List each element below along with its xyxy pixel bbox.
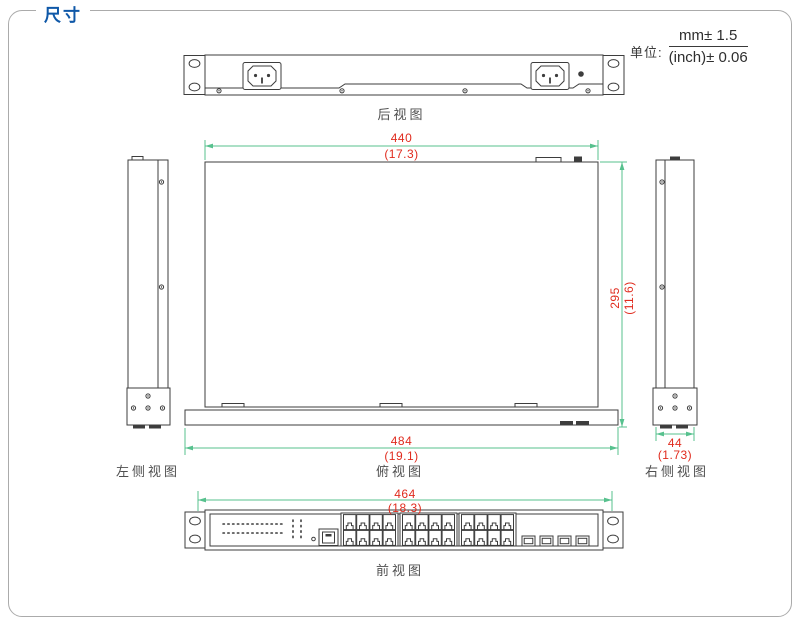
console-port bbox=[319, 529, 338, 546]
reset-button bbox=[312, 537, 316, 541]
top-chassis bbox=[205, 162, 598, 407]
front-flange bbox=[185, 410, 618, 425]
dim-mount-mm: 464 bbox=[198, 487, 612, 501]
right-side-view-drawing bbox=[653, 157, 697, 429]
dim-depth-inch: (11.6) bbox=[622, 281, 636, 314]
front-view-label: 前视图 bbox=[205, 560, 595, 579]
dim-overall-mm: 484 bbox=[185, 434, 618, 448]
left-side-chassis bbox=[128, 160, 168, 388]
rj45-port-block-2 bbox=[400, 513, 457, 546]
left-side-view-drawing bbox=[127, 157, 170, 429]
right-side-chassis bbox=[656, 160, 694, 388]
dim-side-inch: (1.73) bbox=[646, 448, 704, 462]
dim-width-inch: (17.3) bbox=[205, 147, 598, 161]
top-view-drawing bbox=[185, 157, 618, 426]
power-inlet-1 bbox=[243, 63, 281, 90]
rear-view-drawing bbox=[184, 55, 624, 95]
rj45-port-block-1 bbox=[341, 513, 398, 546]
dim-depth: 295 (11.6) bbox=[608, 268, 636, 328]
top-view-label: 俯视图 bbox=[205, 461, 595, 480]
dimension-diagram-page: 尺寸 单位: mm± 1.5 (inch)± 0.06 bbox=[0, 0, 800, 622]
left-view-label: 左侧视图 bbox=[98, 461, 198, 480]
right-view-label: 右侧视图 bbox=[627, 461, 727, 480]
ground-screw bbox=[578, 71, 584, 77]
technical-drawing bbox=[0, 0, 800, 622]
power-inlet-2 bbox=[531, 63, 569, 90]
front-view-drawing bbox=[185, 510, 623, 550]
dim-mount-inch: (18.3) bbox=[198, 501, 612, 515]
rear-view-label: 后视图 bbox=[205, 104, 598, 123]
dim-depth-mm: 295 bbox=[608, 287, 622, 309]
dim-width-mm: 440 bbox=[205, 131, 598, 145]
rj45-port-block-3 bbox=[459, 513, 516, 546]
